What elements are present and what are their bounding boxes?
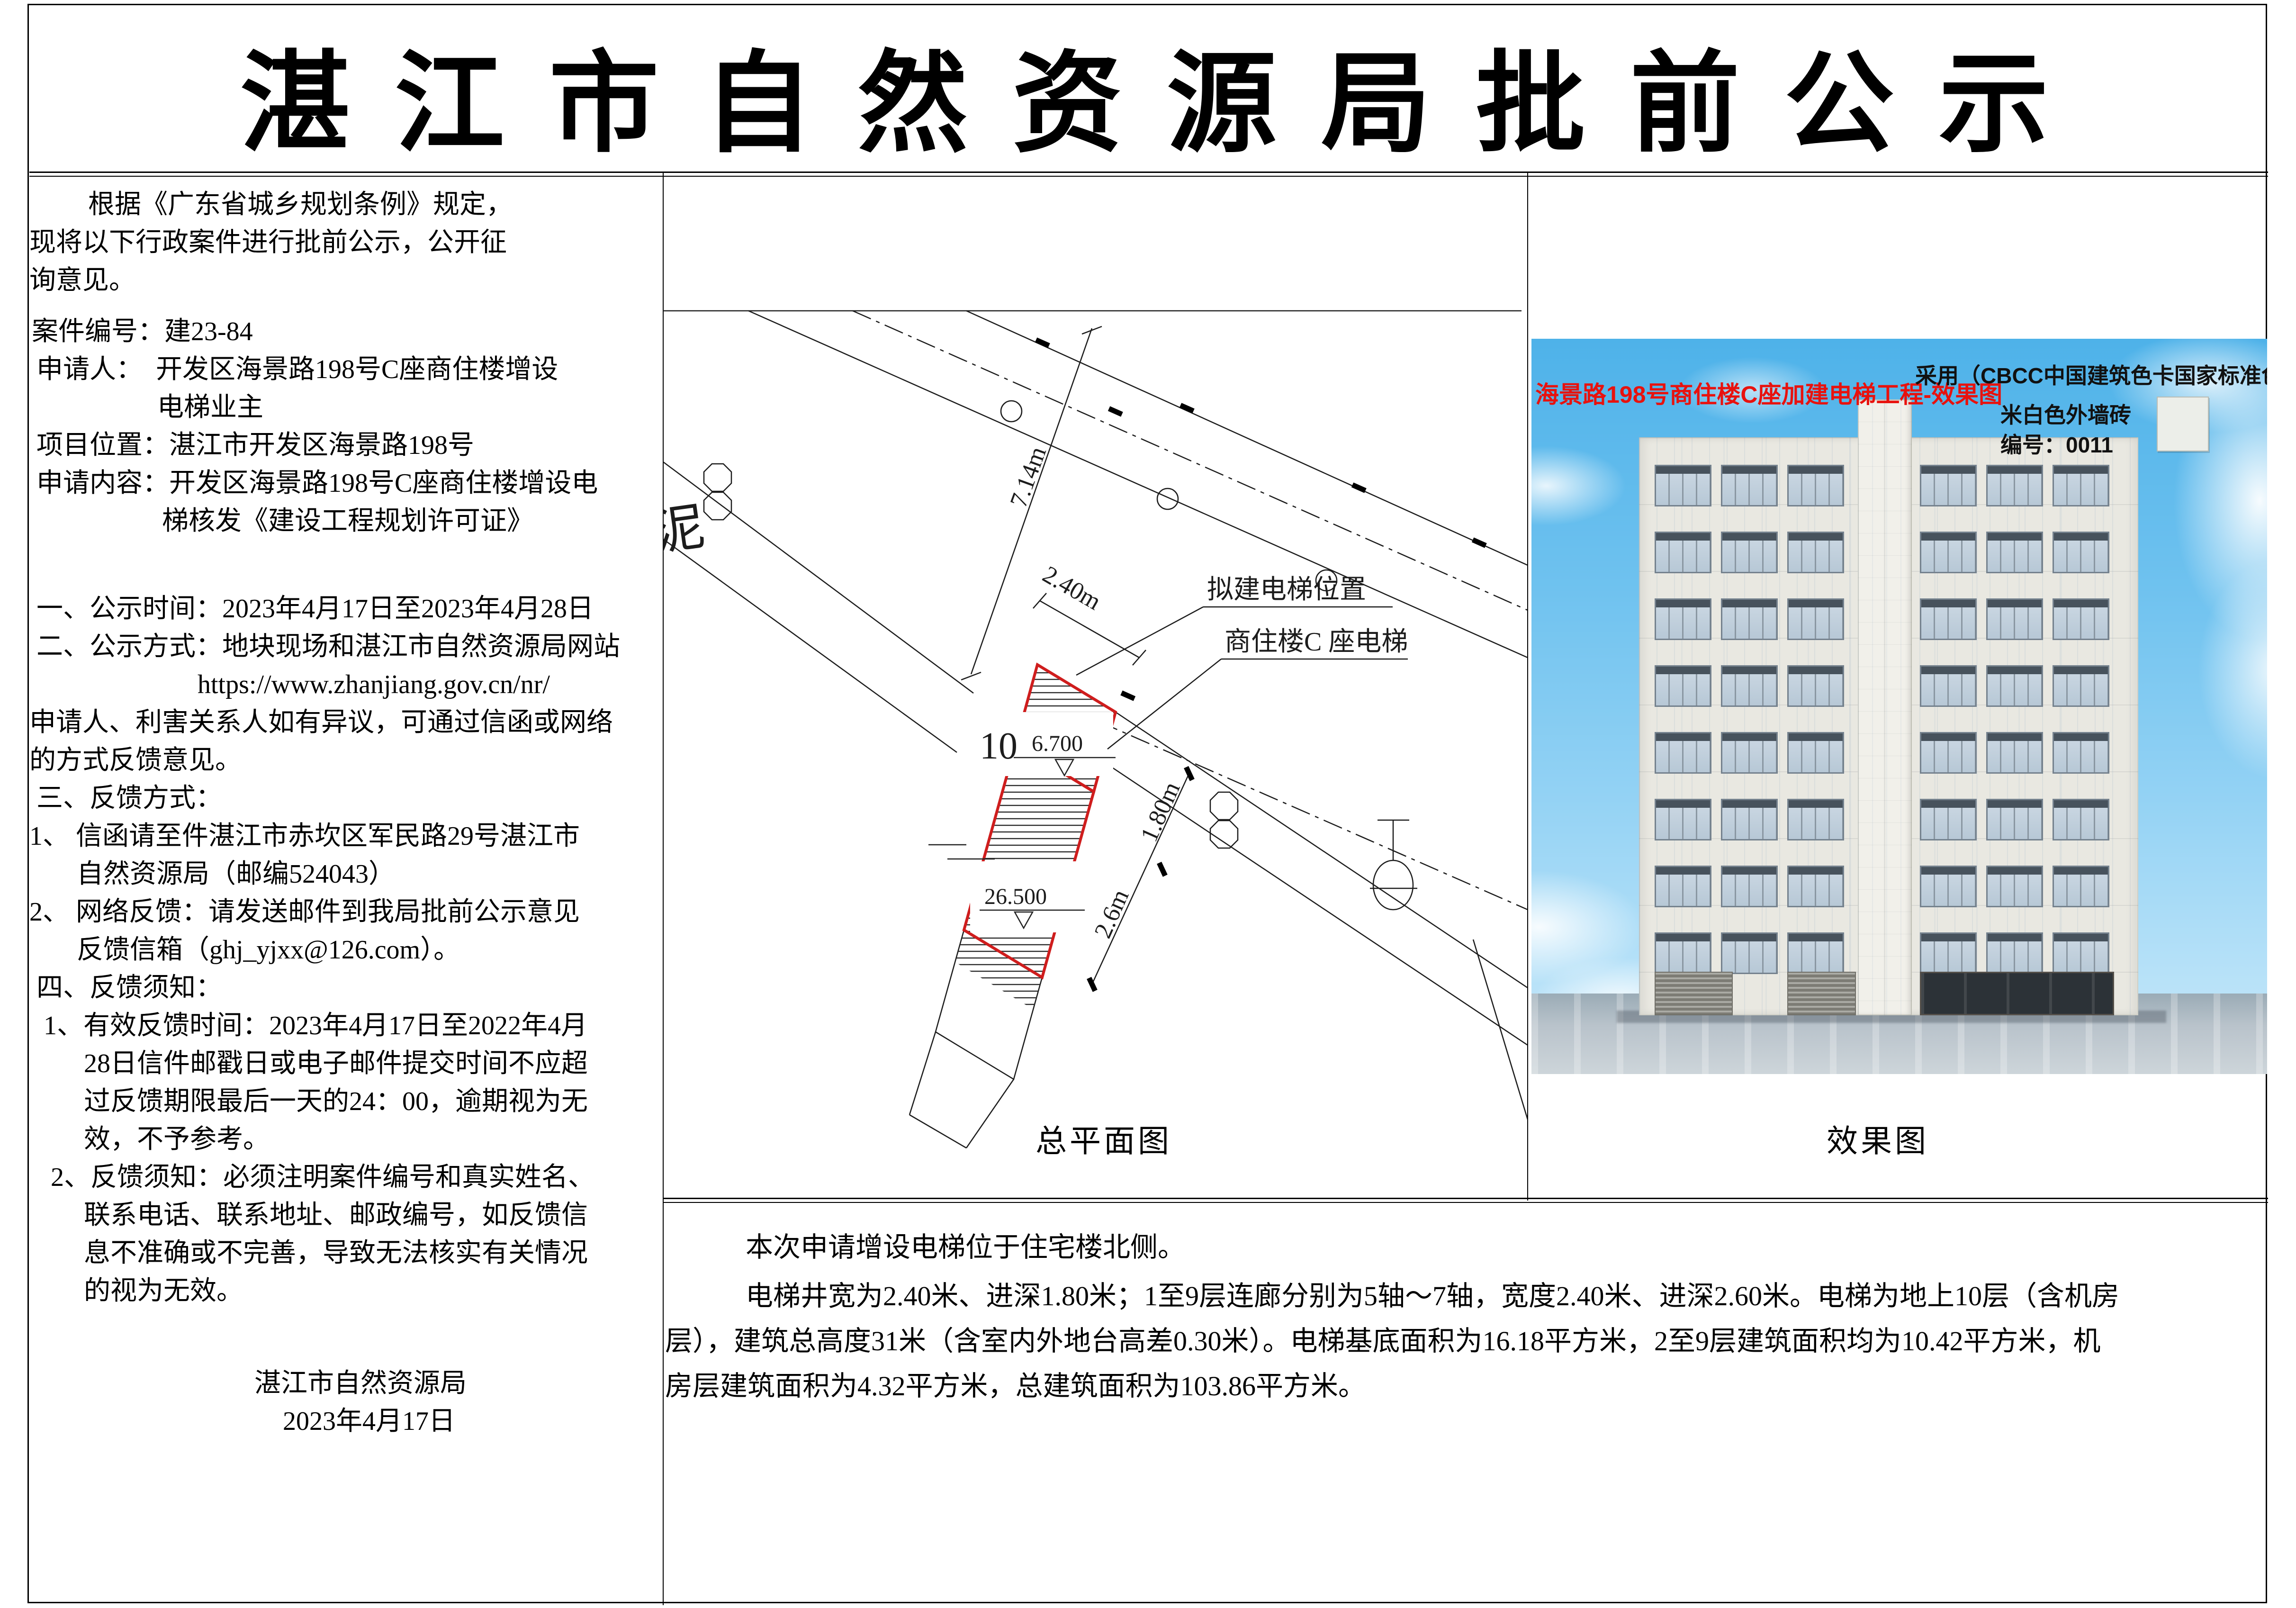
- text-line: 1、有效反馈时间：2023年4月17日至2022年4月: [29, 1007, 661, 1045]
- notice-text-panel: 根据《广东省城乡规划条例》规定，现将以下行政案件进行批前公示，公开征询意见。案件…: [29, 186, 661, 1440]
- window: [2053, 665, 2109, 707]
- window: [1787, 932, 1844, 974]
- window: [1655, 799, 1711, 840]
- text-line: 自然资源局（邮编524043）: [29, 855, 661, 893]
- window: [1787, 532, 1844, 573]
- wall-brick-note: 米白色外墙砖: [2000, 398, 2131, 429]
- window: [1920, 732, 1977, 774]
- cement-label: 泥: [663, 498, 708, 561]
- window: [1920, 866, 1977, 907]
- window: [1721, 598, 1778, 640]
- text-line: 湛江市自然资源局: [29, 1364, 661, 1402]
- window: [1655, 732, 1711, 774]
- window: [1986, 598, 2043, 640]
- window: [1721, 665, 1778, 707]
- site-plan-caption: 总平面图: [1035, 1116, 1172, 1161]
- text-line: 效，不予参考。: [29, 1120, 661, 1158]
- left-road: [663, 462, 973, 752]
- window: [1920, 465, 1977, 506]
- elevator-tower: [1858, 399, 1912, 1015]
- text-line: https://www.zhanjiang.gov.cn/nr/: [29, 666, 661, 704]
- rendering-caption: 效果图: [1827, 1116, 1929, 1161]
- text-line: 二、公示方式：地块现场和湛江市自然资源局网站: [29, 628, 661, 666]
- window: [1920, 932, 1977, 974]
- text-line: 申请人： 开发区海景路198号C座商住楼增设: [29, 351, 661, 388]
- text-line: 2、反馈须知：必须注明案件编号和真实姓名、: [29, 1158, 661, 1196]
- window: [1986, 665, 2043, 707]
- text-line: 申请人、利害关系人如有异议，可通过信函或网络: [29, 704, 661, 741]
- window: [1920, 665, 1977, 707]
- text-line: 1、 信函请至件湛江市赤坎区军民路29号湛江市: [29, 817, 661, 855]
- survey-symbol: [1370, 820, 1417, 910]
- window: [2053, 465, 2109, 506]
- bottom-separator-line-2: [663, 1202, 2268, 1203]
- color-card-note: 采用（CBCC中国建筑色卡国家标准色卡0011色）: [1915, 359, 2267, 390]
- label-building-elevator: 商住楼C 座电梯: [1225, 627, 1408, 657]
- ground-floor-shutter: [1787, 972, 1856, 1015]
- window: [1787, 732, 1844, 774]
- window: [1721, 866, 1778, 907]
- dim-26-label: 2.6m: [1089, 885, 1134, 942]
- window: [1920, 532, 1977, 573]
- window: [1655, 598, 1711, 640]
- window: [1986, 465, 2043, 506]
- site-plan-drawing: 泥: [663, 172, 1528, 1200]
- text-line: 反馈信箱（ghj_yjxx@126.com）。: [29, 931, 661, 969]
- window: [1986, 732, 2043, 774]
- text-line: 的视为无效。: [29, 1272, 661, 1310]
- text-line: 电梯业主: [29, 388, 661, 426]
- window: [1655, 866, 1711, 907]
- tree-symbol-left: [704, 464, 731, 520]
- tower-texture: [1858, 399, 1912, 1015]
- text-line: 房层建筑面积为4.32平方米，总建筑面积为103.86平方米。: [665, 1364, 2266, 1409]
- color-code-note: 编号：0011: [2000, 428, 2113, 459]
- window: [1721, 532, 1778, 573]
- window: [1721, 799, 1778, 840]
- text-line: 项目位置：湛江市开发区海景路198号: [29, 426, 661, 464]
- text-line: 2、 网络反馈：请发送邮件到我局批前公示意见: [29, 893, 661, 931]
- floors-number: 10: [980, 725, 1017, 767]
- text-line: 层），建筑总高度31米（含室内外地台高差0.30米）。电梯基底面积为16.18平…: [665, 1319, 2266, 1364]
- rendering-photo: 海景路198号商住楼C座加建电梯工程-效果图 采用（CBCC中国建筑色卡国家标准…: [1531, 339, 2267, 1074]
- upper-road: [748, 311, 1528, 658]
- color-swatch: [2157, 397, 2209, 452]
- text-line: 四、反馈须知：: [29, 969, 661, 1007]
- ground-floor-shutter: [1655, 972, 1733, 1015]
- level-26500: 26.500: [984, 884, 1047, 909]
- window: [1920, 598, 1977, 640]
- text-line: 梯核发《建设工程规划许可证》: [29, 502, 661, 540]
- text-line: 28日信件邮戳日或电子邮件提交时间不应超: [29, 1045, 661, 1083]
- ground-floor-entrance: [1920, 972, 2114, 1015]
- window: [1655, 465, 1711, 506]
- window: [1787, 665, 1844, 707]
- window: [1986, 866, 2043, 907]
- notice-page: 湛 江 市 自 然 资 源 局 批 前 公 示 根据《广东省城乡规划条例》规定，…: [0, 0, 2296, 1608]
- window: [1655, 532, 1711, 573]
- text-line: 2023年4月17日: [29, 1402, 661, 1440]
- window: [1655, 665, 1711, 707]
- window: [1787, 598, 1844, 640]
- window: [1787, 866, 1844, 907]
- dim-714-label: 7.14m: [1005, 443, 1052, 511]
- page-title: 湛 江 市 自 然 资 源 局 批 前 公 示: [28, 14, 2269, 173]
- window: [1986, 532, 2043, 573]
- text-line: 询意见。: [29, 262, 661, 299]
- window: [1986, 932, 2043, 974]
- window: [2053, 799, 2109, 840]
- window: [2053, 532, 2109, 573]
- window: [2053, 732, 2109, 774]
- window: [1986, 799, 2043, 840]
- window: [1721, 465, 1778, 506]
- lower-road: [1099, 712, 1528, 1120]
- text-line: 的方式反馈意见。: [29, 741, 661, 779]
- level-6700: 6.700: [1032, 731, 1083, 756]
- window: [1920, 799, 1977, 840]
- window: [2053, 598, 2109, 640]
- window: [1721, 732, 1778, 774]
- text-line: 现将以下行政案件进行批前公示，公开征: [29, 224, 661, 262]
- window: [1721, 932, 1778, 974]
- window: [2053, 932, 2109, 974]
- text-line: 本次申请增设电梯位于住宅楼北侧。: [665, 1225, 2266, 1270]
- description-panel: 本次申请增设电梯位于住宅楼北侧。电梯井宽为2.40米、进深1.80米；1至9层连…: [665, 1225, 2266, 1409]
- label-proposed-elevator: 拟建电梯位置: [1207, 575, 1366, 605]
- text-line: 申请内容：开发区海景路198号C座商住楼增设电: [29, 464, 661, 502]
- window: [2053, 866, 2109, 907]
- window: [1787, 799, 1844, 840]
- text-line: 根据《广东省城乡规划条例》规定，: [29, 186, 661, 224]
- text-line: 案件编号：建23-84: [29, 313, 661, 351]
- label1-leader: [1076, 607, 1203, 675]
- text-line: 过反馈期限最后一天的24：00，逾期视为无: [29, 1083, 661, 1120]
- window: [1655, 932, 1711, 974]
- tree-symbol-right: [1210, 792, 1238, 848]
- text-line: 联系电话、联系地址、邮政编号，如反馈信: [29, 1196, 661, 1234]
- text-line: 电梯井宽为2.40米、进深1.80米；1至9层连廊分别为5轴～7轴，宽度2.40…: [665, 1274, 2266, 1319]
- window: [1787, 465, 1844, 506]
- label2-leader: [1107, 659, 1221, 749]
- dim-240-label: 2.40m: [1038, 561, 1105, 615]
- text-line: 一、公示时间：2023年4月17日至2023年4月28日: [29, 590, 661, 628]
- text-line: 息不准确或不完善，导致无法核实有关情况: [29, 1234, 661, 1272]
- text-line: 三、反馈方式：: [29, 779, 661, 817]
